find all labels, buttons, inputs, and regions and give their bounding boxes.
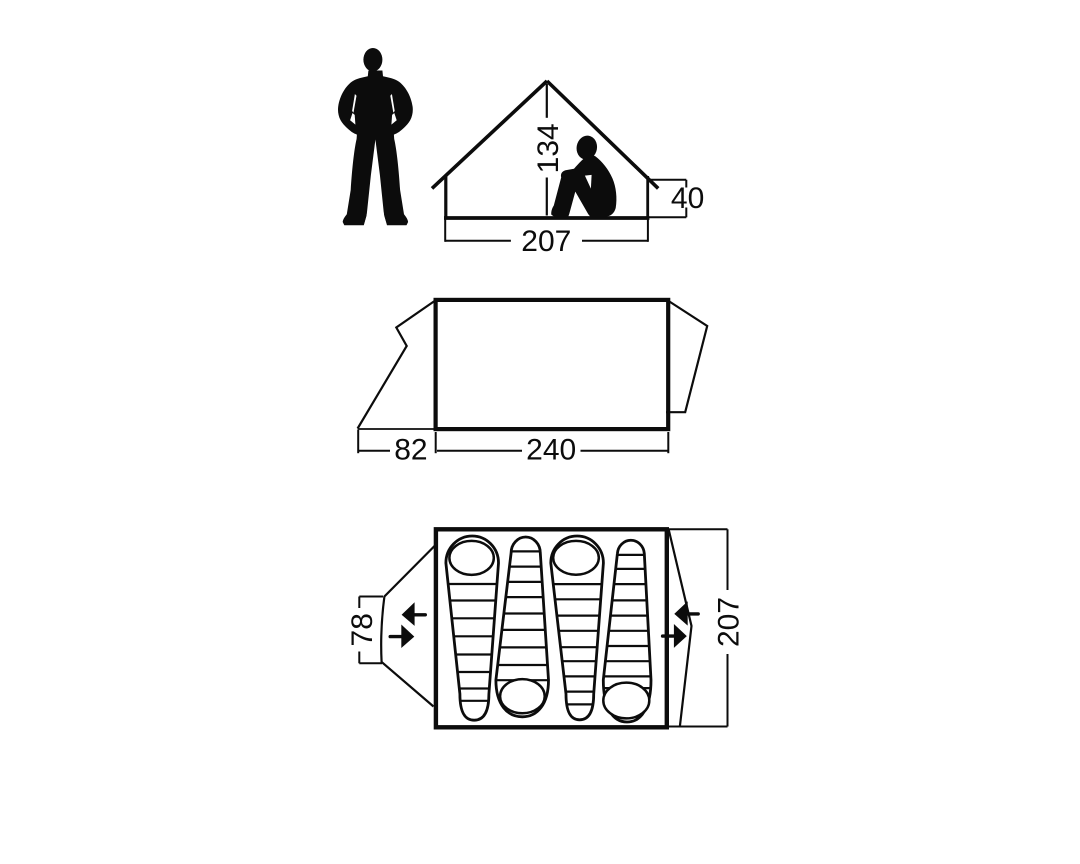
svg-text:207: 207 bbox=[713, 597, 746, 647]
svg-text:240: 240 bbox=[526, 434, 576, 467]
svg-text:134: 134 bbox=[532, 123, 565, 173]
svg-text:40: 40 bbox=[671, 182, 704, 215]
svg-text:207: 207 bbox=[521, 225, 571, 258]
svg-text:82: 82 bbox=[394, 434, 427, 467]
svg-text:78: 78 bbox=[346, 613, 379, 646]
